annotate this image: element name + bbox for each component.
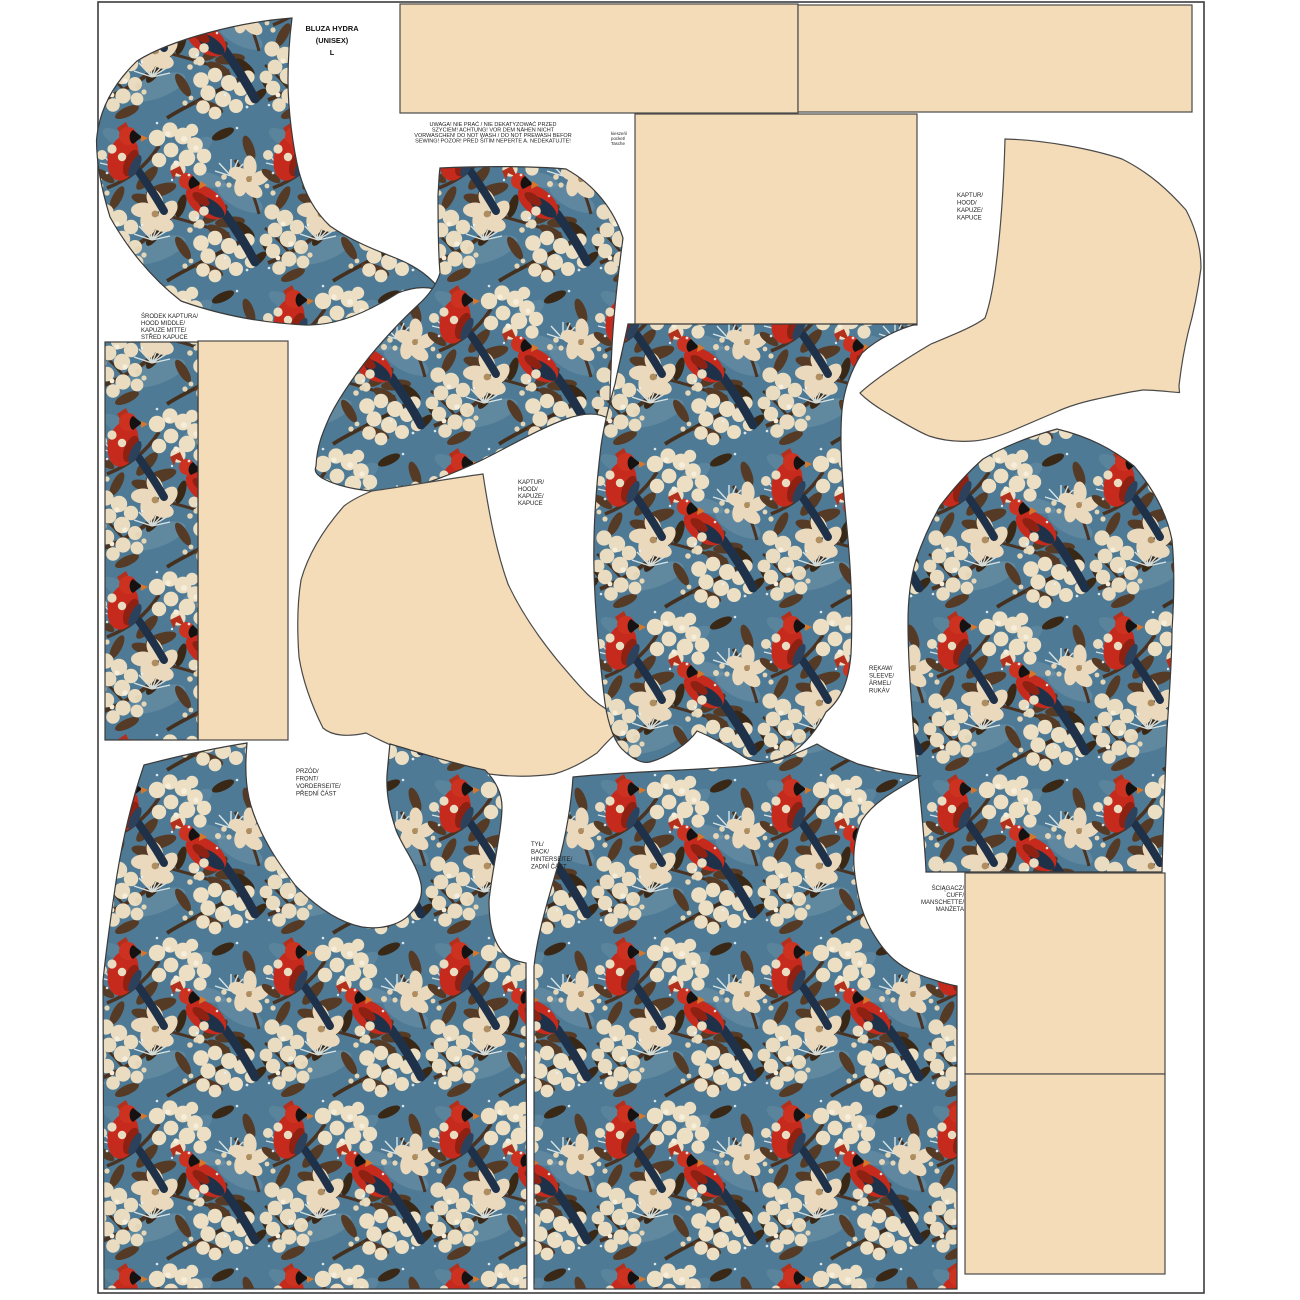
svg-text:HOOD/: HOOD/ — [957, 201, 977, 207]
svg-text:KAPUZE/: KAPUZE/ — [957, 208, 983, 214]
svg-text:BLUZA HYDRA: BLUZA HYDRA — [305, 24, 359, 33]
svg-text:KAPTUR/: KAPTUR/ — [518, 480, 544, 486]
svg-text:(UNISEX): (UNISEX) — [316, 36, 349, 45]
svg-text:SLEEVE/: SLEEVE/ — [869, 674, 894, 680]
svg-text:KAPTUR/: KAPTUR/ — [957, 193, 983, 199]
svg-text:RUKÁV: RUKÁV — [869, 688, 890, 695]
svg-text:VORDERSEITE/: VORDERSEITE/ — [296, 784, 341, 790]
svg-text:STŘED KAPUCE: STŘED KAPUCE — [141, 333, 188, 341]
svg-text:PRZÓD/: PRZÓD/ — [296, 768, 319, 775]
svg-text:L: L — [330, 48, 335, 57]
svg-text:MANŻETA: MANŻETA — [936, 906, 964, 913]
svg-text:SEWING! POZOR! PŘED ŠITÍM NEPE: SEWING! POZOR! PŘED ŠITÍM NEPERTE A. NED… — [415, 137, 571, 145]
svg-text:PŘEDNÍ ČÁST: PŘEDNÍ ČÁST — [296, 790, 337, 798]
svg-text:HOOD/: HOOD/ — [518, 487, 538, 493]
svg-text:KAPUCE: KAPUCE — [957, 216, 982, 222]
svg-text:FRONT/: FRONT/ — [296, 777, 319, 783]
svg-text:KAPUZE MITTE/: KAPUZE MITTE/ — [141, 328, 187, 334]
svg-text:RĘKAW/: RĘKAW/ — [869, 666, 893, 672]
svg-text:ŚCIĄGACZ/: ŚCIĄGACZ/ — [932, 884, 965, 892]
svg-text:KAPUZE/: KAPUZE/ — [518, 494, 544, 500]
svg-text:TYŁ/: TYŁ/ — [531, 842, 544, 848]
svg-text:MANSCHETTE/: MANSCHETTE/ — [921, 900, 964, 906]
svg-text:KAPUCE: KAPUCE — [518, 501, 543, 507]
svg-text:ÄRMEL/: ÄRMEL/ — [869, 680, 892, 687]
svg-text:CUFF/: CUFF/ — [946, 893, 964, 899]
svg-text:Tasche: Tasche — [611, 141, 625, 146]
svg-text:ŚRODEK KAPTURA/: ŚRODEK KAPTURA/ — [141, 312, 198, 320]
svg-text:HINTERSEITE/: HINTERSEITE/ — [531, 857, 573, 863]
svg-text:BACK/: BACK/ — [531, 850, 549, 856]
svg-text:HOOD MIDDLE/: HOOD MIDDLE/ — [141, 321, 185, 327]
svg-text:ZADNÍ ČÁST: ZADNÍ ČÁST — [531, 864, 567, 871]
